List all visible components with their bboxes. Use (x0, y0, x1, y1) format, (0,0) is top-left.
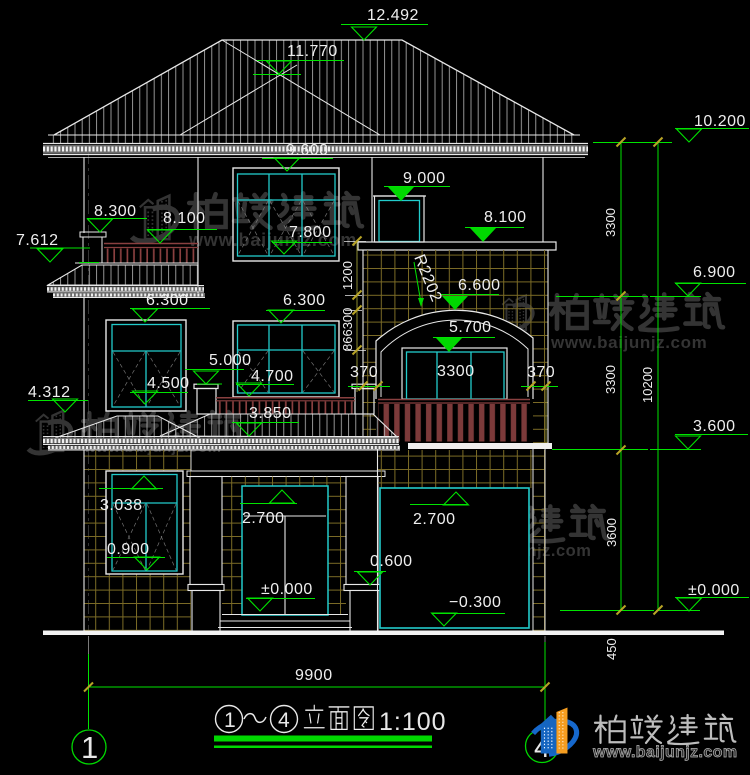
svg-text:6.600: 6.600 (458, 277, 501, 294)
svg-text:3300: 3300 (603, 208, 618, 237)
svg-text:12.492: 12.492 (367, 7, 419, 24)
svg-text:370: 370 (350, 364, 378, 381)
svg-text:0.600: 0.600 (370, 553, 413, 570)
svg-text:8.100: 8.100 (484, 209, 527, 226)
svg-text:450: 450 (604, 638, 619, 660)
svg-text:6.300: 6.300 (146, 292, 189, 309)
svg-text:1: 1 (224, 709, 236, 732)
svg-text:4: 4 (278, 709, 290, 732)
svg-text:866300: 866300 (340, 308, 355, 351)
svg-text:4.500: 4.500 (147, 375, 190, 392)
svg-text:3.038: 3.038 (100, 497, 143, 514)
svg-text:−0.300: −0.300 (449, 594, 501, 611)
svg-text:9.000: 9.000 (403, 170, 446, 187)
svg-text:5.000: 5.000 (209, 352, 252, 369)
svg-text:7.800: 7.800 (289, 224, 332, 241)
svg-text:7.612: 7.612 (16, 232, 59, 249)
svg-text:1200: 1200 (340, 261, 355, 290)
svg-text:±0.000: ±0.000 (261, 581, 313, 598)
svg-text:2.700: 2.700 (413, 511, 456, 528)
svg-text:3.600: 3.600 (693, 418, 736, 435)
svg-text:www.baijunjz.com: www.baijunjz.com (592, 744, 738, 761)
svg-text:±0.000: ±0.000 (688, 582, 740, 599)
svg-text:370: 370 (527, 364, 555, 381)
svg-text:6.300: 6.300 (283, 292, 326, 309)
svg-text:www.baijunjz.com: www.baijunjz.com (188, 230, 357, 250)
svg-text:3600: 3600 (604, 518, 619, 547)
svg-text:11.770: 11.770 (287, 43, 338, 60)
svg-text:3.850: 3.850 (249, 405, 292, 422)
svg-text:8.300: 8.300 (94, 203, 137, 220)
svg-text:10200: 10200 (640, 367, 655, 403)
svg-text:1: 1 (81, 730, 98, 765)
svg-text:0.900: 0.900 (107, 541, 150, 558)
svg-text:www.baijunjz.com: www.baijunjz.com (550, 333, 707, 352)
svg-text:6.900: 6.900 (693, 264, 736, 281)
svg-text:5.700: 5.700 (449, 319, 492, 336)
svg-text:3300: 3300 (437, 363, 475, 380)
svg-text:2.700: 2.700 (242, 510, 285, 527)
svg-text:1:100: 1:100 (379, 708, 447, 736)
svg-text:3300: 3300 (603, 365, 618, 394)
svg-text:8.100: 8.100 (163, 210, 206, 227)
svg-text:9900: 9900 (295, 667, 333, 684)
svg-text:9.600: 9.600 (286, 142, 329, 159)
svg-text:10.200: 10.200 (694, 113, 746, 130)
